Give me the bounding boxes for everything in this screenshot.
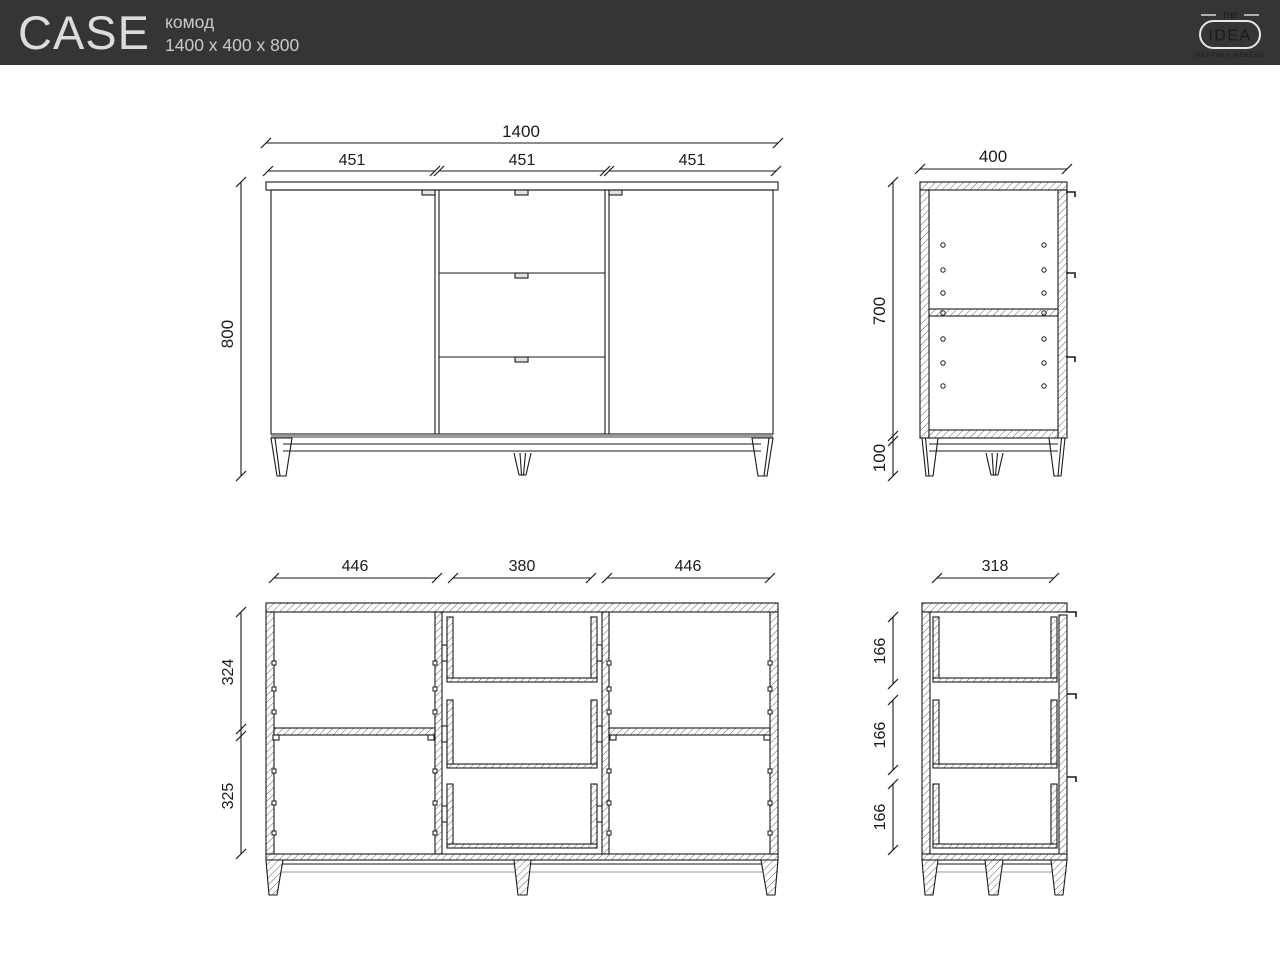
- left-door-handle: [422, 190, 435, 195]
- dim-side-section-depth: 318: [982, 558, 1009, 575]
- dim-section-lower-height: 325: [220, 783, 237, 810]
- ss-bottom-panel: [922, 854, 1067, 860]
- fs-left-wall: [266, 612, 274, 854]
- side-base: [922, 438, 1065, 476]
- fs-left-leg: [266, 860, 283, 895]
- fs-shelf-brackets: [273, 735, 770, 740]
- dim-section-width-1: 446: [342, 558, 369, 575]
- fs-bottom-panel: [266, 854, 778, 860]
- front-top-panel: [266, 182, 778, 190]
- fs-left-shelf: [274, 728, 435, 735]
- fs-drawer-2: [447, 700, 597, 768]
- ss-drawer-3: [933, 784, 1057, 848]
- side-back-wall: [920, 190, 929, 438]
- dim-section-width-3: 446: [675, 558, 702, 575]
- dim-drawer-height-2: 166: [872, 722, 889, 749]
- ss-drawer-2: [933, 700, 1057, 768]
- fs-right-leg: [761, 860, 778, 895]
- fs-drawer-slides: [442, 645, 602, 822]
- front-section-view: 446 380 446 324 325: [220, 558, 778, 895]
- side-front-wall: [1058, 190, 1067, 438]
- drawer-1-handle: [515, 190, 528, 195]
- side-middle-leg: [986, 453, 1003, 475]
- ss-front-wall: [1059, 615, 1067, 854]
- side-middle-shelf: [929, 309, 1058, 316]
- fs-right-shelf: [609, 728, 770, 735]
- front-view: 1400 451 451 451 800: [218, 122, 783, 481]
- ss-base: [922, 860, 1067, 895]
- dim-side-depth: 400: [979, 147, 1007, 166]
- fs-middle-leg: [514, 860, 531, 895]
- fs-base: [266, 860, 778, 895]
- fs-drawer-1: [447, 617, 597, 682]
- fs-right-wall: [770, 612, 778, 854]
- ss-right-leg: [1051, 860, 1067, 895]
- dim-front-section-2: 451: [509, 152, 536, 169]
- ss-handle-profiles: [1067, 612, 1076, 782]
- front-base: [271, 435, 773, 476]
- dim-section-upper-height: 324: [220, 659, 237, 686]
- dim-side-body-height: 700: [870, 297, 889, 325]
- right-door-handle: [609, 190, 622, 195]
- dim-drawer-height-3: 166: [872, 804, 889, 831]
- drawer-3-handle: [515, 357, 528, 362]
- front-carcass: [271, 190, 773, 434]
- ss-drawer-1: [933, 617, 1057, 682]
- fs-shelf-pins: [272, 661, 772, 835]
- fs-right-divider: [602, 612, 609, 854]
- dim-front-total-height: 800: [218, 320, 237, 348]
- front-middle-leg: [514, 453, 531, 475]
- fs-drawer-3: [447, 784, 597, 848]
- drawer-2-handle: [515, 273, 528, 278]
- ss-left-leg: [922, 860, 938, 895]
- side-top-panel: [920, 182, 1067, 190]
- side-bottom-panel: [929, 430, 1058, 438]
- front-plinth-band: [271, 435, 773, 438]
- technical-drawing-sheet: 1400 451 451 451 800: [0, 0, 1280, 959]
- fs-left-divider: [435, 612, 442, 854]
- front-view-dimensions: 1400 451 451 451 800: [218, 122, 783, 481]
- front-handles: [422, 190, 622, 362]
- ss-middle-leg: [985, 860, 1003, 895]
- ss-top-panel: [922, 603, 1067, 612]
- dim-front-section-1: 451: [339, 152, 366, 169]
- dim-drawer-height-1: 166: [872, 638, 889, 665]
- side-section-view: 318 166 166 166: [872, 558, 1076, 895]
- dim-section-width-2: 380: [509, 558, 536, 575]
- dim-front-section-3: 451: [679, 152, 706, 169]
- dim-front-total-width: 1400: [502, 122, 540, 141]
- side-view: 400 700 100: [870, 147, 1075, 481]
- ss-back-wall: [922, 612, 930, 854]
- dim-side-leg-height: 100: [870, 444, 889, 472]
- fs-top-panel: [266, 603, 778, 612]
